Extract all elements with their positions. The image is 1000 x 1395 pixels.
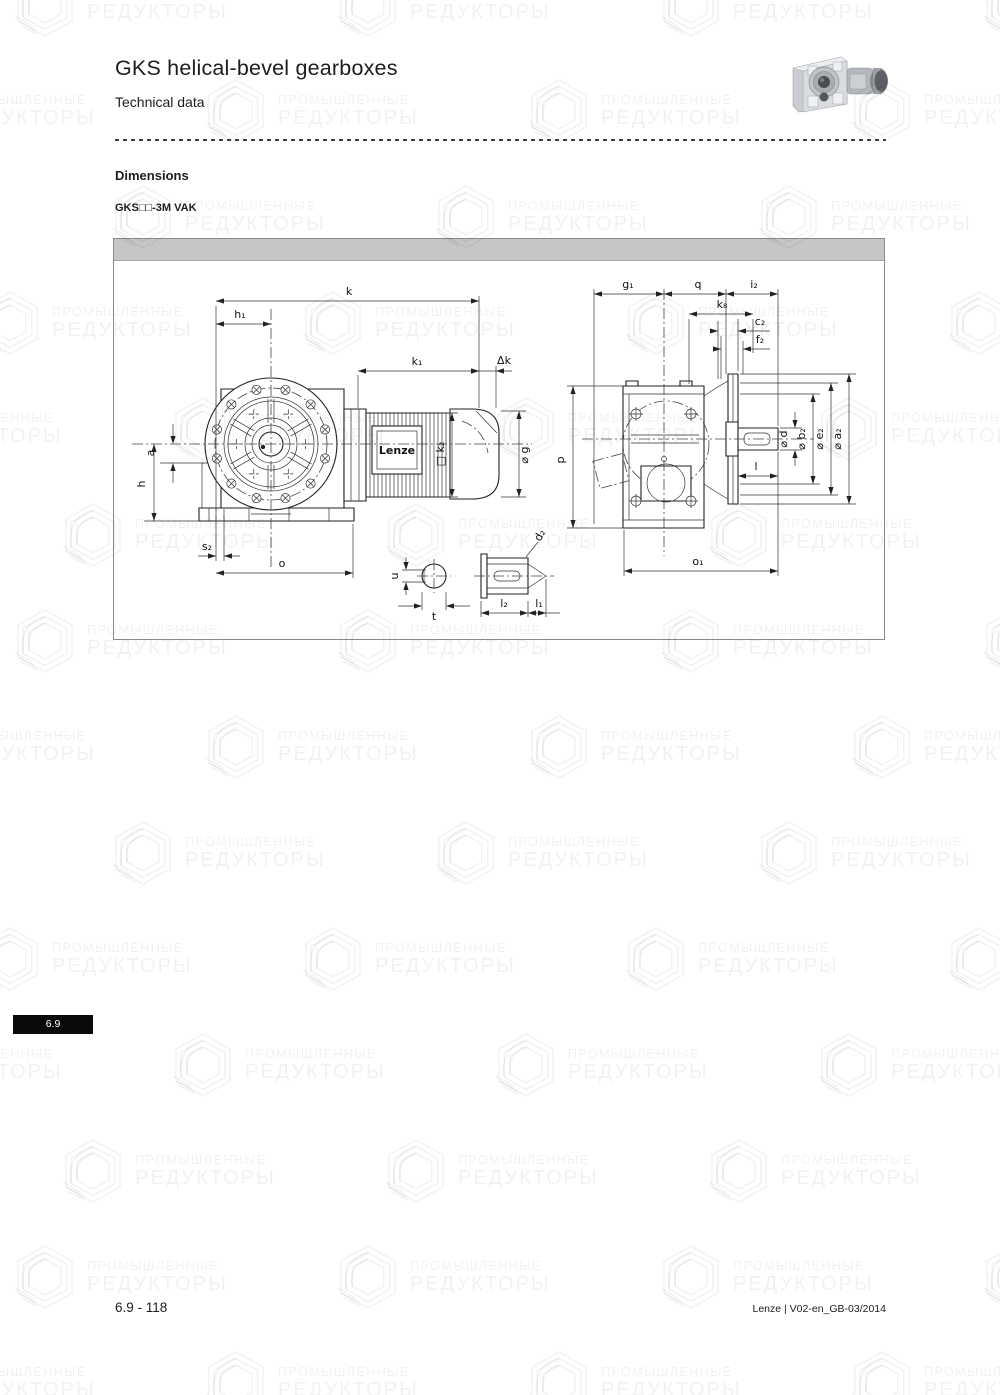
watermark-tile: ПРОМЫШЛЕННЫЕРЕДУКТОРЫ bbox=[300, 926, 516, 992]
watermark-line2: РЕДУКТОРЫ bbox=[924, 744, 1000, 765]
dim-label-dk: Δk bbox=[497, 354, 512, 367]
watermark-logo-icon bbox=[383, 1138, 449, 1204]
watermark-line1: ПРОМЫШЛЕННЫЕ bbox=[278, 93, 419, 107]
watermark-line1: ПРОМЫШЛЕННЫЕ bbox=[87, 1259, 228, 1273]
watermark-line1: ПРОМЫШЛЕННЫЕ bbox=[781, 1153, 922, 1167]
watermark-logo-icon bbox=[335, 0, 401, 38]
watermark-line2: РЕДУКТОРЫ bbox=[0, 744, 96, 765]
watermark-tile: ПРОМЫШЛЕННЫЕРЕДУКТОРЫ bbox=[493, 1032, 709, 1098]
watermark-tile: ПРОМЫШЛЕННЫЕРЕДУКТОРЫ bbox=[623, 926, 839, 992]
watermark-line1: ПРОМЫШЛЕННЫЕ bbox=[410, 1259, 551, 1273]
dim-label-k8: k₈ bbox=[717, 298, 728, 311]
watermark-logo-icon bbox=[946, 290, 1000, 356]
dim-label-l2: l₂ bbox=[500, 597, 507, 610]
watermark-logo-icon bbox=[981, 608, 1000, 674]
watermark-line1: ПРОМЫШЛЕННЫЕ bbox=[0, 411, 63, 425]
page-subtitle: Technical data bbox=[115, 94, 205, 110]
watermark-line2: РЕДУКТОРЫ bbox=[458, 1168, 599, 1189]
watermark-logo-icon bbox=[946, 926, 1000, 992]
watermark-tile: ПРОМЫШЛЕННЫЕРЕДУКТОРЫ bbox=[981, 1244, 1000, 1310]
dim-label-t: t bbox=[432, 610, 437, 623]
watermark-logo-icon bbox=[203, 1350, 269, 1395]
watermark-tile: ПРОМЫШЛЕННЫЕРЕДУКТОРЫ bbox=[0, 1032, 63, 1098]
watermark-line2: РЕДУКТОРЫ bbox=[891, 1062, 1000, 1083]
watermark-line2: РЕДУКТОРЫ bbox=[831, 850, 972, 871]
watermark-logo-icon bbox=[756, 820, 822, 886]
watermark-line1: ПРОМЫШЛЕННЫЕ bbox=[891, 411, 1000, 425]
watermark-line2: РЕДУКТОРЫ bbox=[601, 108, 742, 129]
dim-label-k2: □ k₂ bbox=[434, 442, 447, 467]
dim-label-s2: s₂ bbox=[202, 540, 212, 553]
watermark-line2: РЕДУКТОРЫ bbox=[278, 744, 419, 765]
section-heading: Dimensions bbox=[115, 168, 189, 183]
watermark-line1: ПРОМЫШЛЕННЫЕ bbox=[245, 1047, 386, 1061]
product-photo bbox=[781, 44, 895, 126]
watermark-tile: ПРОМЫШЛЕННЫЕРЕДУКТОРЫ bbox=[335, 1244, 551, 1310]
watermark-logo-icon bbox=[623, 926, 689, 992]
dashed-divider bbox=[115, 139, 886, 141]
variant-label: GKS□□-3M VAK bbox=[115, 202, 197, 214]
watermark-logo-icon bbox=[12, 608, 78, 674]
watermark-logo-icon bbox=[60, 1138, 126, 1204]
watermark-logo-icon bbox=[12, 0, 78, 38]
dimension-drawing: Lenze bbox=[114, 261, 884, 639]
watermark-line1: ПРОМЫШЛЕННЫЕ bbox=[924, 1365, 1000, 1379]
watermark-tile: ПРОМЫШЛЕННЫЕРЕДУКТОРЫ bbox=[110, 820, 326, 886]
watermark-line2: РЕДУКТОРЫ bbox=[0, 1062, 63, 1083]
dim-label-k1: k₁ bbox=[412, 355, 423, 368]
watermark-line2: РЕДУКТОРЫ bbox=[508, 850, 649, 871]
watermark-line1: ПРОМЫШЛЕННЫЕ bbox=[0, 1365, 96, 1379]
dim-label-l1: l₁ bbox=[535, 597, 542, 610]
watermark-line1: ПРОМЫШЛЕННЫЕ bbox=[0, 835, 3, 849]
watermark-logo-icon bbox=[526, 714, 592, 780]
watermark-logo-icon bbox=[12, 1244, 78, 1310]
watermark-tile: ПРОМЫШЛЕННЫЕРЕДУКТОРЫ bbox=[0, 1350, 96, 1395]
motor-brand-label: Lenze bbox=[379, 444, 415, 457]
watermark-line2: РЕДУКТОРЫ bbox=[891, 426, 1000, 447]
watermark-logo-icon bbox=[493, 1032, 559, 1098]
watermark-tile: ПРОМЫШЛЕННЫЕРЕДУКТОРЫ bbox=[433, 820, 649, 886]
watermark-tile: ПРОМЫШЛЕННЫЕРЕДУКТОРЫ bbox=[170, 1032, 386, 1098]
watermark-line2: РЕДУКТОРЫ bbox=[781, 1168, 922, 1189]
watermark-tile: ПРОМЫШЛЕННЫЕРЕДУКТОРЫ bbox=[981, 608, 1000, 674]
watermark-tile: ПРОМЫШЛЕННЫЕРЕДУКТОРЫ bbox=[946, 290, 1000, 356]
watermark-tile: ПРОМЫШЛЕННЫЕРЕДУКТОРЫ bbox=[335, 0, 551, 38]
watermark-line1: ПРОМЫШЛЕННЫЕ bbox=[891, 1047, 1000, 1061]
dim-label-l: l bbox=[754, 460, 757, 473]
watermark-line1: ПРОМЫШЛЕННЫЕ bbox=[508, 835, 649, 849]
watermark-line2: РЕДУКТОРЫ bbox=[278, 108, 419, 129]
watermark-line1: ПРОМЫШЛЕННЫЕ bbox=[52, 941, 193, 955]
watermark-line1: ПРОМЫШЛЕННЫЕ bbox=[278, 1365, 419, 1379]
watermark-logo-icon bbox=[526, 78, 592, 144]
dim-label-o: o bbox=[279, 557, 286, 570]
dim-label-a2: ⌀ a₂ bbox=[831, 428, 844, 449]
watermark-tile: ПРОМЫШЛЕННЫЕРЕДУКТОРЫ bbox=[658, 1244, 874, 1310]
drawing-panel-header-bar bbox=[114, 239, 884, 261]
drawing-panel: Lenze bbox=[113, 238, 885, 640]
watermark-logo-icon bbox=[816, 1032, 882, 1098]
watermark-line2: РЕДУКТОРЫ bbox=[410, 1274, 551, 1295]
watermark-line1: ПРОМЫШЛЕННЫЕ bbox=[733, 1259, 874, 1273]
watermark-line1: ПРОМЫШЛЕННЫЕ bbox=[601, 729, 742, 743]
dim-label-f2: f₂ bbox=[756, 333, 764, 346]
watermark-tile: ПРОМЫШЛЕННЫЕРЕДУКТОРЫ bbox=[0, 396, 63, 462]
watermark-line2: РЕДУКТОРЫ bbox=[375, 956, 516, 977]
watermark-line2: РЕДУКТОРЫ bbox=[410, 2, 551, 23]
dim-label-k: k bbox=[346, 285, 353, 298]
gearbox-photo-illustration bbox=[781, 44, 895, 126]
watermark-line1: ПРОМЫШЛЕННЫЕ bbox=[831, 199, 972, 213]
watermark-logo-icon bbox=[981, 1244, 1000, 1310]
dim-label-c2: c₂ bbox=[755, 315, 765, 328]
watermark-line2: РЕДУКТОРЫ bbox=[135, 1168, 276, 1189]
watermark-tile: ПРОМЫШЛЕННЫЕРЕДУКТОРЫ bbox=[0, 926, 193, 992]
dim-label-u: u bbox=[388, 573, 401, 580]
watermark-tile: ПРОМЫШЛЕННЫЕРЕДУКТОРЫ bbox=[60, 1138, 276, 1204]
document-page: GKS helical-bevel gearboxes Technical da… bbox=[0, 0, 1000, 1395]
watermark-tile: ПРОМЫШЛЕННЫЕРЕДУКТОРЫ bbox=[756, 820, 972, 886]
watermark-line1: ПРОМЫШЛЕННЫЕ bbox=[733, 0, 874, 2]
watermark-line1: ПРОМЫШЛЕННЫЕ bbox=[601, 1365, 742, 1379]
dim-label-b2: ⌀ b₂ bbox=[795, 428, 808, 450]
watermark-line2: РЕДУКТОРЫ bbox=[698, 956, 839, 977]
watermark-tile: ПРОМЫШЛЕННЫЕРЕДУКТОРЫ bbox=[849, 714, 1000, 780]
watermark-line1: ПРОМЫШЛЕННЫЕ bbox=[135, 1153, 276, 1167]
watermark-line1: ПРОМЫШЛЕННЫЕ bbox=[185, 199, 326, 213]
watermark-line2: РЕДУКТОРЫ bbox=[0, 1380, 96, 1395]
watermark-line1: ПРОМЫШЛЕННЫЕ bbox=[698, 941, 839, 955]
watermark-tile: ПРОМЫШЛЕННЫЕРЕДУКТОРЫ bbox=[12, 0, 228, 38]
watermark-line2: РЕДУКТОРЫ bbox=[0, 850, 3, 871]
watermark-logo-icon bbox=[849, 714, 915, 780]
watermark-line1: ПРОМЫШЛЕННЫЕ bbox=[924, 729, 1000, 743]
watermark-line2: РЕДУКТОРЫ bbox=[733, 2, 874, 23]
watermark-tile: ПРОМЫШЛЕННЫЕРЕДУКТОРЫ bbox=[203, 714, 419, 780]
watermark-tile: ПРОМЫШЛЕННЫЕРЕДУКТОРЫ bbox=[526, 1350, 742, 1395]
front-view: Lenze bbox=[132, 285, 560, 623]
watermark-line2: РЕДУКТОРЫ bbox=[410, 638, 551, 659]
watermark-tile: ПРОМЫШЛЕННЫЕРЕДУКТОРЫ bbox=[526, 714, 742, 780]
watermark-line1: ПРОМЫШЛЕННЫЕ bbox=[87, 0, 228, 2]
dim-label-q: q bbox=[695, 278, 702, 291]
watermark-line2: РЕДУКТОРЫ bbox=[733, 638, 874, 659]
chapter-tab: 6.9 bbox=[13, 1015, 93, 1034]
watermark-line2: РЕДУКТОРЫ bbox=[831, 214, 972, 235]
watermark-line1: ПРОМЫШЛЕННЫЕ bbox=[410, 0, 551, 2]
watermark-tile: ПРОМЫШЛЕННЫЕРЕДУКТОРЫ bbox=[0, 78, 96, 144]
watermark-tile: ПРОМЫШЛЕННЫЕРЕДУКТОРЫ bbox=[0, 820, 3, 886]
watermark-line2: РЕДУКТОРЫ bbox=[924, 108, 1000, 129]
watermark-tile: ПРОМЫШЛЕННЫЕРЕДУКТОРЫ bbox=[946, 926, 1000, 992]
watermark-logo-icon bbox=[658, 1244, 724, 1310]
watermark-tile: ПРОМЫШЛЕННЫЕРЕДУКТОРЫ bbox=[658, 0, 874, 38]
watermark-line2: РЕДУКТОРЫ bbox=[87, 638, 228, 659]
dim-label-h1: h₁ bbox=[234, 308, 245, 321]
watermark-line2: РЕДУКТОРЫ bbox=[508, 214, 649, 235]
dim-label-i2: i₂ bbox=[750, 278, 757, 291]
watermark-line1: ПРОМЫШЛЕННЫЕ bbox=[0, 729, 96, 743]
watermark-line2: РЕДУКТОРЫ bbox=[0, 108, 96, 129]
watermark-logo-icon bbox=[335, 1244, 401, 1310]
watermark-line1: ПРОМЫШЛЕННЫЕ bbox=[375, 941, 516, 955]
watermark-logo-icon bbox=[0, 926, 43, 992]
watermark-tile: ПРОМЫШЛЕННЫЕРЕДУКТОРЫ bbox=[526, 78, 742, 144]
page-title: GKS helical-bevel gearboxes bbox=[115, 56, 398, 81]
side-view: g₁ q i₂ k₈ c₂ f₂ p bbox=[554, 278, 856, 576]
watermark-line2: РЕДУКТОРЫ bbox=[568, 1062, 709, 1083]
watermark-logo-icon bbox=[433, 820, 499, 886]
watermark-line2: РЕДУКТОРЫ bbox=[52, 956, 193, 977]
watermark-logo-icon bbox=[170, 1032, 236, 1098]
watermark-logo-icon bbox=[981, 0, 1000, 38]
watermark-line2: РЕДУКТОРЫ bbox=[924, 1380, 1000, 1395]
watermark-tile: ПРОМЫШЛЕННЫЕРЕДУКТОРЫ bbox=[0, 714, 96, 780]
watermark-line2: РЕДУКТОРЫ bbox=[733, 1274, 874, 1295]
dim-label-d2: d₂ bbox=[531, 527, 548, 543]
watermark-logo-icon bbox=[706, 1138, 772, 1204]
watermark-tile: ПРОМЫШЛЕННЫЕРЕДУКТОРЫ bbox=[981, 0, 1000, 38]
watermark-logo-icon bbox=[849, 1350, 915, 1395]
watermark-tile: ПРОМЫШЛЕННЫЕРЕДУКТОРЫ bbox=[0, 184, 3, 250]
watermark-line1: ПРОМЫШЛЕННЫЕ bbox=[185, 835, 326, 849]
watermark-line1: ПРОМЫШЛЕННЫЕ bbox=[0, 93, 96, 107]
watermark-line1: ПРОМЫШЛЕННЫЕ bbox=[0, 1047, 63, 1061]
dim-label-p: p bbox=[554, 456, 567, 463]
watermark-line2: РЕДУКТОРЫ bbox=[185, 214, 326, 235]
watermark-line2: РЕДУКТОРЫ bbox=[87, 1274, 228, 1295]
watermark-line1: ПРОМЫШЛЕННЫЕ bbox=[831, 835, 972, 849]
watermark-tile: ПРОМЫШЛЕННЫЕРЕДУКТОРЫ bbox=[203, 1350, 419, 1395]
watermark-line2: РЕДУКТОРЫ bbox=[87, 2, 228, 23]
dim-label-e2: ⌀ e₂ bbox=[813, 428, 826, 449]
watermark-logo-icon bbox=[0, 290, 43, 356]
watermark-line1: ПРОМЫШЛЕННЫЕ bbox=[508, 199, 649, 213]
watermark-line2: РЕДУКТОРЫ bbox=[278, 1380, 419, 1395]
dim-label-d: ⌀ d bbox=[777, 430, 790, 447]
watermark-logo-icon bbox=[203, 78, 269, 144]
dim-label-g: ⌀ g bbox=[518, 446, 531, 463]
watermark-line2: РЕДУКТОРЫ bbox=[601, 1380, 742, 1395]
watermark-tile: ПРОМЫШЛЕННЫЕРЕДУКТОРЫ bbox=[383, 1138, 599, 1204]
watermark-tile: ПРОМЫШЛЕННЫЕРЕДУКТОРЫ bbox=[849, 1350, 1000, 1395]
footer-doc-reference: Lenze | V02-en_GB-03/2014 bbox=[753, 1303, 887, 1315]
watermark-logo-icon bbox=[658, 0, 724, 38]
watermark-logo-icon bbox=[110, 820, 176, 886]
dim-label-o1: o₁ bbox=[692, 555, 703, 568]
watermark-tile: ПРОМЫШЛЕННЫЕРЕДУКТОРЫ bbox=[203, 78, 419, 144]
watermark-logo-icon bbox=[526, 1350, 592, 1395]
watermark-line2: РЕДУКТОРЫ bbox=[601, 744, 742, 765]
dim-label-h: h bbox=[135, 480, 148, 487]
watermark-logo-icon bbox=[203, 714, 269, 780]
watermark-line1: ПРОМЫШЛЕННЫЕ bbox=[0, 199, 3, 213]
watermark-line1: ПРОМЫШЛЕННЫЕ bbox=[568, 1047, 709, 1061]
watermark-line1: ПРОМЫШЛЕННЫЕ bbox=[601, 93, 742, 107]
footer-page-number: 6.9 - 118 bbox=[115, 1300, 167, 1315]
watermark-line1: ПРОМЫШЛЕННЫЕ bbox=[278, 729, 419, 743]
watermark-line2: РЕДУКТОРЫ bbox=[245, 1062, 386, 1083]
watermark-line2: РЕДУКТОРЫ bbox=[0, 426, 63, 447]
watermark-line1: ПРОМЫШЛЕННЫЕ bbox=[924, 93, 1000, 107]
watermark-line1: ПРОМЫШЛЕННЫЕ bbox=[458, 1153, 599, 1167]
dim-label-g1: g₁ bbox=[622, 278, 633, 291]
watermark-line2: РЕДУКТОРЫ bbox=[0, 214, 3, 235]
watermark-logo-icon bbox=[300, 926, 366, 992]
watermark-tile: ПРОМЫШЛЕННЫЕРЕДУКТОРЫ bbox=[816, 1032, 1000, 1098]
watermark-line2: РЕДУКТОРЫ bbox=[185, 850, 326, 871]
watermark-tile: ПРОМЫШЛЕННЫЕРЕДУКТОРЫ bbox=[706, 1138, 922, 1204]
